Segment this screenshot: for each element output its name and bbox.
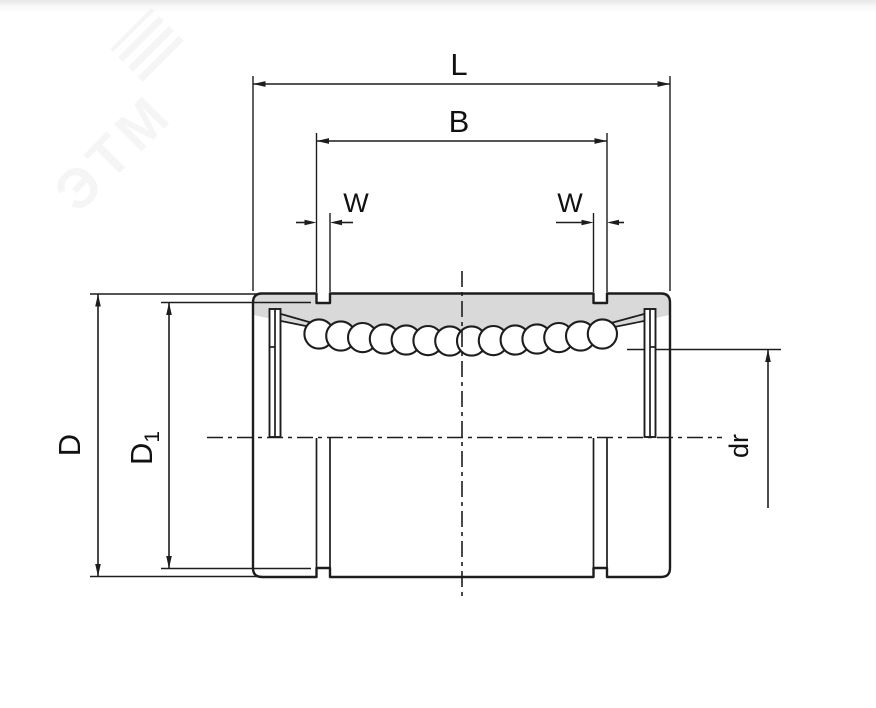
label-D1-base: D (124, 443, 159, 465)
dimension-W-right: W (556, 188, 624, 292)
label-W-left: W (343, 188, 369, 218)
bearing-drawing: L B W W (0, 0, 876, 708)
bearing-ball (588, 319, 617, 348)
seal-right (645, 309, 656, 437)
dimension-W-left: W (296, 188, 369, 292)
label-B: B (449, 104, 470, 139)
label-dr: dr (724, 434, 754, 458)
label-W-right: W (557, 188, 583, 218)
drawing-canvas: ЭТМ (0, 0, 876, 708)
label-D1-subscript: 1 (141, 431, 164, 443)
seal-left (270, 309, 281, 437)
dimension-dr: dr (724, 350, 771, 509)
label-L: L (450, 47, 467, 82)
label-D: D (52, 434, 87, 456)
svg-text:D1: D1 (124, 431, 164, 465)
dimension-D1: D1 (124, 303, 311, 569)
